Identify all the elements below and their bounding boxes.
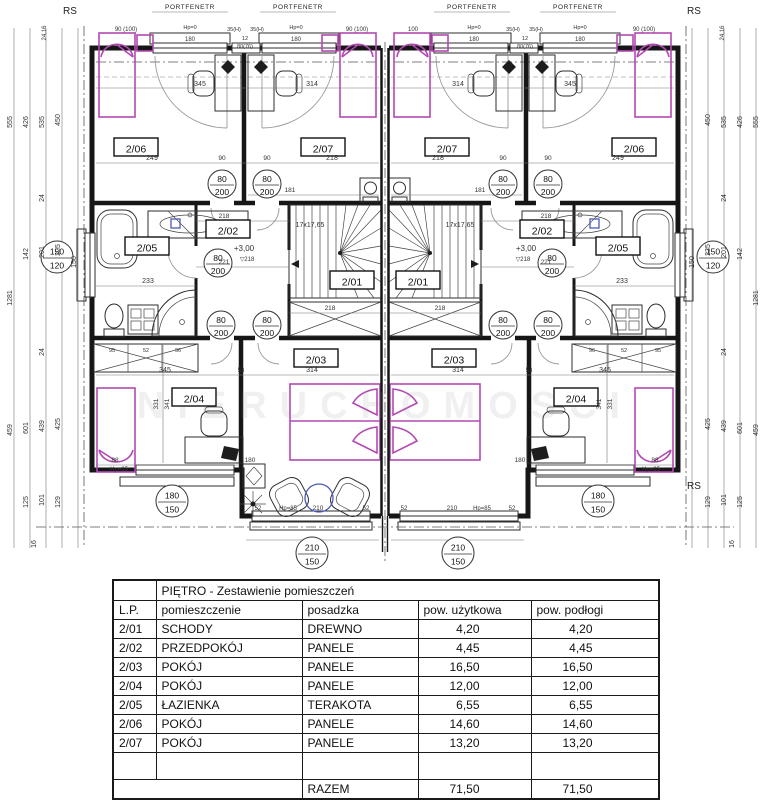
outer-dimension-label: 555 xyxy=(753,116,760,128)
schedule-cell: DREWNO xyxy=(302,620,418,639)
schedule-cell: 13,20 xyxy=(418,734,531,753)
outer-dimension-label: 450 xyxy=(705,114,712,126)
door-size-marker: 80200 xyxy=(489,170,517,198)
dimension-label: 180 xyxy=(291,37,302,43)
outer-dimension-label: 24 xyxy=(721,348,728,356)
toilet xyxy=(104,304,124,337)
svg-text:80: 80 xyxy=(262,174,272,184)
svg-text:150: 150 xyxy=(165,505,179,515)
outer-dimension-label: 535 xyxy=(721,116,728,128)
window-size-marker: 180150 xyxy=(156,485,188,517)
dimension-label: 345 xyxy=(599,367,611,374)
svg-text:200: 200 xyxy=(496,187,510,197)
dimension-label: 181 xyxy=(285,187,296,194)
room-number-label: 2/07 xyxy=(301,138,345,156)
schedule-cell: 4,20 xyxy=(531,620,659,639)
schedule-cell: PANELE xyxy=(302,734,418,753)
svg-text:210: 210 xyxy=(451,543,465,553)
outer-dimension-label: 535 xyxy=(39,116,46,128)
door-size-marker: 80200 xyxy=(253,311,281,339)
dimension-label: Hp=85 xyxy=(642,467,661,473)
outer-dimension-label: 425 xyxy=(705,418,712,430)
svg-text:2/05: 2/05 xyxy=(608,243,629,255)
schedule-cell: 6,55 xyxy=(418,696,531,715)
outer-dimension-label: 142 xyxy=(23,248,30,260)
outer-dimension-label: 101 xyxy=(39,494,46,506)
dimension-label: 210 xyxy=(313,505,324,512)
room-number-label: 2/06 xyxy=(612,138,656,156)
door-swing-arc xyxy=(262,56,334,128)
schedule-cell: POKÓJ xyxy=(156,734,302,753)
door-size-marker: 80200 xyxy=(534,170,562,198)
dimension-label: 24,16 xyxy=(720,25,726,41)
svg-text:2/06: 2/06 xyxy=(126,144,147,156)
rs-label: RS xyxy=(63,6,77,17)
dimension-label: 96 xyxy=(175,348,181,354)
dimension-label: 90 xyxy=(263,155,271,162)
schedule-cell xyxy=(113,753,156,780)
mirror-cabinet xyxy=(171,219,180,228)
dimension-label: 80(76) xyxy=(517,44,533,50)
dimension-label: 314 xyxy=(306,81,318,88)
dimension-label: 52 xyxy=(255,506,262,512)
outer-dimension-label: 24 xyxy=(721,194,728,202)
outer-dimension-label: 439 xyxy=(39,420,46,432)
svg-text:2/01: 2/01 xyxy=(342,277,363,289)
dimension-label: Hp=85 xyxy=(473,506,492,512)
dimension-label: 95 xyxy=(109,348,115,354)
corner-shower xyxy=(152,290,196,336)
svg-text:2/02: 2/02 xyxy=(532,226,553,238)
dimension-label: 52 xyxy=(401,506,408,512)
outer-dimension-label: 201 xyxy=(39,246,46,258)
dimension-label: 12 xyxy=(522,36,528,42)
floor-plan-svg: NIERUCHOMOSCI2/062/072/022/052/012/032/0… xyxy=(0,0,768,572)
dimension-label: 181 xyxy=(475,187,486,194)
room-number-label: 2/02 xyxy=(206,220,250,238)
outer-dimension-label: 16 xyxy=(31,540,38,548)
svg-text:120: 120 xyxy=(706,261,720,271)
schedule-cell: L.P. xyxy=(113,601,156,620)
schedule-cell: 2/06 xyxy=(113,715,156,734)
svg-text:200: 200 xyxy=(541,187,555,197)
dimension-label: ▽218 xyxy=(240,257,255,263)
outer-dimension-label: 459 xyxy=(7,424,14,436)
dimension-label: 17x17,65 xyxy=(296,222,325,229)
dimension-label: Hp=0 xyxy=(573,25,586,31)
svg-text:150: 150 xyxy=(591,505,605,515)
svg-text:2/06: 2/06 xyxy=(624,144,645,156)
portfenetr-label: PORTFENETR xyxy=(553,4,603,11)
door-swing-arc xyxy=(155,56,227,128)
schedule-cell: PIĘTRO - Zestawienie pomieszczeń xyxy=(156,580,659,601)
outer-dimension-label: 426 xyxy=(23,116,30,128)
outer-dimension-label: 150 xyxy=(689,256,696,268)
dimension-label: 90 (100) xyxy=(633,27,655,33)
outer-dimension-label: 1281 xyxy=(7,290,14,306)
schedule-cell: PANELE xyxy=(302,715,418,734)
door-size-marker: 80200 xyxy=(207,311,235,339)
dimension-label: 52 xyxy=(143,348,149,354)
svg-text:180: 180 xyxy=(591,491,605,501)
outer-dimension-label: 24 xyxy=(39,194,46,202)
schedule-cell: PRZEDPOKÓJ xyxy=(156,639,302,658)
room-number-label: 2/03 xyxy=(294,349,338,367)
schedule-cell: 2/05 xyxy=(113,696,156,715)
desk xyxy=(185,437,243,463)
svg-text:150: 150 xyxy=(451,557,465,567)
dimension-label: 12 xyxy=(242,36,248,42)
schedule-cell xyxy=(113,780,302,800)
outer-dimension-label: 601 xyxy=(737,422,744,434)
dimension-label: +3,00 xyxy=(234,244,255,253)
schedule-cell: 4,45 xyxy=(418,639,531,658)
outer-dimension-label: 225 xyxy=(705,244,712,256)
dimension-label: Hp=0 xyxy=(183,25,196,31)
dimension-label: 249 xyxy=(146,155,158,162)
outer-dimension-label: 150 xyxy=(71,256,78,268)
schedule-cell: 2/01 xyxy=(113,620,156,639)
schedule-cell: 16,50 xyxy=(531,658,659,677)
dimension-label: 218 xyxy=(325,305,336,312)
svg-text:200: 200 xyxy=(260,328,274,338)
window-size-marker: 180150 xyxy=(582,485,614,517)
rs-label: RS xyxy=(687,481,701,492)
dimension-label: Hp=0 xyxy=(467,25,480,31)
svg-text:80: 80 xyxy=(543,315,553,325)
outer-dimension-label: 16 xyxy=(729,540,736,548)
dimension-label: 233 xyxy=(616,278,628,285)
dimension-label: +3,00 xyxy=(516,244,537,253)
schedule-cell: TERAKOTA xyxy=(302,696,418,715)
dimension-label: 88 xyxy=(651,457,659,464)
room-number-label: 2/01 xyxy=(396,271,440,289)
schedule-cell: pow. użytkowa xyxy=(418,601,531,620)
dimension-label: 35(H) xyxy=(506,27,520,33)
dimension-label: 90 (100) xyxy=(115,27,137,33)
svg-text:180: 180 xyxy=(165,491,179,501)
vent-stack xyxy=(360,178,381,202)
svg-text:2/01: 2/01 xyxy=(408,277,429,289)
room-number-label: 2/05 xyxy=(596,237,640,255)
outer-dimension-label: 459 xyxy=(753,424,760,436)
svg-text:200: 200 xyxy=(541,328,555,338)
svg-text:200: 200 xyxy=(211,266,225,276)
outer-dimension-label: 450 xyxy=(55,114,62,126)
schedule-cell: PANELE xyxy=(302,677,418,696)
dimension-label: 221 xyxy=(541,259,552,266)
svg-text:80: 80 xyxy=(217,174,227,184)
dimension-label: 314 xyxy=(306,367,318,374)
svg-text:2/07: 2/07 xyxy=(313,144,334,156)
schedule-cell: posadzka xyxy=(302,601,418,620)
schedule-cell: 71,50 xyxy=(418,780,531,800)
schedule-cell: POKÓJ xyxy=(156,715,302,734)
portfenetr-label: PORTFENETR xyxy=(165,4,215,11)
dimension-label: 180 xyxy=(245,457,256,464)
svg-text:200: 200 xyxy=(545,266,559,276)
portfenetr-label: PORTFENETR xyxy=(273,4,323,11)
outer-dimension-label: 1281 xyxy=(753,290,760,306)
dimension-label: 24,16 xyxy=(42,25,48,41)
outer-dimension-label: 225 xyxy=(55,244,62,256)
outer-dimension-label: 201 xyxy=(721,246,728,258)
schedule-cell: 71,50 xyxy=(531,780,659,800)
dimension-label: 53 xyxy=(238,368,245,374)
schedule-cell: pomieszczenie xyxy=(156,601,302,620)
dimension-label: 345 xyxy=(194,81,206,88)
outer-dimension-label: 129 xyxy=(705,496,712,508)
dimension-label: 90 xyxy=(499,155,507,162)
door-size-marker: 80200 xyxy=(253,170,281,198)
outer-dimension-label: 24 xyxy=(39,348,46,356)
schedule-row: 2/03POKÓJPANELE16,5016,50 xyxy=(113,658,659,677)
svg-text:120: 120 xyxy=(50,261,64,271)
schedule-row: RAZEM71,5071,50 xyxy=(113,780,659,800)
room-number-label: 2/04 xyxy=(172,388,216,406)
portfenetr-label: PORTFENETR xyxy=(447,4,497,11)
schedule-cell: 4,20 xyxy=(418,620,531,639)
dimension-label: 218 xyxy=(326,155,338,162)
schedule-row: 2/02PRZEDPOKÓJPANELE4,454,45 xyxy=(113,639,659,658)
party-wall xyxy=(382,42,389,562)
schedule-cell: PANELE xyxy=(302,658,418,677)
dimension-label: 35(H) xyxy=(227,27,241,33)
dimension-label: 345 xyxy=(564,81,576,88)
schedule-cell: 6,55 xyxy=(531,696,659,715)
dimension-label: 314 xyxy=(452,367,464,374)
room-number-label: 2/03 xyxy=(432,349,476,367)
outer-dimension-label: 425 xyxy=(55,418,62,430)
room-number-label: 2/04 xyxy=(554,388,598,406)
dimension-label: 90 xyxy=(544,155,552,162)
dimension-label: ▽218 xyxy=(516,257,531,263)
window-size-marker: 210150 xyxy=(442,537,474,569)
schedule-row: 2/01SCHODYDREWNO4,204,20 xyxy=(113,620,659,639)
schedule-cell: POKÓJ xyxy=(156,677,302,696)
architectural-drawing-page: NIERUCHOMOSCI2/062/072/022/052/012/032/0… xyxy=(0,0,768,805)
schedule-cell: RAZEM xyxy=(302,780,418,800)
schedule-cell: 14,60 xyxy=(531,715,659,734)
window-size-marker: 210150 xyxy=(296,537,328,569)
outer-dimension-label: 129 xyxy=(55,496,62,508)
laptop xyxy=(221,446,239,461)
schedule-cell xyxy=(302,753,418,780)
dimension-label: 90 (100) xyxy=(346,27,368,33)
svg-text:2/05: 2/05 xyxy=(137,243,158,255)
svg-text:150: 150 xyxy=(305,557,319,567)
door-size-marker: 80200 xyxy=(534,311,562,339)
schedule-cell: 13,20 xyxy=(531,734,659,753)
dimension-label: 180 xyxy=(469,37,480,43)
washer-cabinet xyxy=(128,305,158,334)
svg-text:2/03: 2/03 xyxy=(444,355,465,367)
schedule-row: 2/07POKÓJPANELE13,2013,20 xyxy=(113,734,659,753)
dimension-label: 35(H) xyxy=(250,27,264,33)
room-number-label: 2/02 xyxy=(520,220,564,238)
room-schedule: PIĘTRO - Zestawienie pomieszczeńL.P.pomi… xyxy=(112,579,660,800)
window-sill xyxy=(250,522,372,530)
dimension-label: 80(76) xyxy=(237,44,253,50)
dimension-label: 180 xyxy=(185,37,196,43)
outer-dimension-label: 426 xyxy=(737,116,744,128)
schedule-cell xyxy=(418,753,531,780)
room-number-label: 2/05 xyxy=(125,237,169,255)
outer-dimension-label: 142 xyxy=(737,248,744,260)
schedule-row xyxy=(113,753,659,780)
dimension-label: 17x17,65 xyxy=(446,222,475,229)
svg-text:2/02: 2/02 xyxy=(218,226,239,238)
schedule-cell: SCHODY xyxy=(156,620,302,639)
outer-dimension-label: 439 xyxy=(721,420,728,432)
dimension-label: Hp=85 xyxy=(279,506,298,512)
dimension-label: 90 xyxy=(218,155,226,162)
dimension-label: 341 xyxy=(164,398,171,409)
dimension-label: 218 xyxy=(432,155,444,162)
svg-text:200: 200 xyxy=(214,328,228,338)
schedule-cell: 16,50 xyxy=(418,658,531,677)
dimension-label: 331 xyxy=(607,398,614,409)
svg-text:80: 80 xyxy=(498,315,508,325)
dimension-label: 53 xyxy=(526,368,533,374)
schedule-cell xyxy=(113,580,156,601)
svg-text:80: 80 xyxy=(262,315,272,325)
door-size-marker: 80200 xyxy=(489,311,517,339)
outer-dimension-label: 601 xyxy=(23,422,30,434)
schedule-cell: 14,60 xyxy=(418,715,531,734)
dimension-label: 210 xyxy=(447,505,458,512)
schedule-cell: PANELE xyxy=(302,639,418,658)
svg-text:2/07: 2/07 xyxy=(437,144,458,156)
schedule-cell: 4,45 xyxy=(531,639,659,658)
svg-text:2/04: 2/04 xyxy=(184,394,205,406)
dimension-label: 218 xyxy=(435,305,446,312)
svg-text:210: 210 xyxy=(305,543,319,553)
schedule-cell: pow. podłogi xyxy=(531,601,659,620)
dimension-label: 100 xyxy=(408,27,419,33)
svg-text:80: 80 xyxy=(543,174,553,184)
schedule-cell: ŁAZIENKA xyxy=(156,696,302,715)
dimension-label: 249 xyxy=(612,155,624,162)
dimension-label: 180 xyxy=(515,457,526,464)
svg-text:80: 80 xyxy=(498,174,508,184)
dimension-label: 331 xyxy=(153,398,160,409)
outer-dimension-label: 125 xyxy=(23,496,30,508)
schedule-row: PIĘTRO - Zestawienie pomieszczeń xyxy=(113,580,659,601)
schedule-cell: 2/02 xyxy=(113,639,156,658)
dimension-label: 218 xyxy=(219,213,230,220)
cabinet xyxy=(243,464,265,488)
room-number-label: 2/07 xyxy=(425,138,469,156)
dimension-label: 221 xyxy=(219,259,230,266)
schedule-cell xyxy=(531,753,659,780)
svg-text:200: 200 xyxy=(496,328,510,338)
schedule-cell: 12,00 xyxy=(531,677,659,696)
dimension-label: 52 xyxy=(363,506,370,512)
outer-dimension-label: 125 xyxy=(737,496,744,508)
dimension-label: 314 xyxy=(452,81,464,88)
schedule-cell: 2/03 xyxy=(113,658,156,677)
door-size-marker: 80200 xyxy=(208,170,236,198)
svg-text:200: 200 xyxy=(215,187,229,197)
window-sill xyxy=(120,477,234,486)
dimension-label: 95 xyxy=(655,348,661,354)
rs-label: RS xyxy=(687,6,701,17)
dimension-label: 180 xyxy=(575,37,586,43)
dimension-label: 35(H) xyxy=(529,27,543,33)
dimension-label: 88 xyxy=(111,457,119,464)
svg-text:200: 200 xyxy=(260,187,274,197)
schedule-row: L.P.pomieszczenieposadzkapow. użytkowapo… xyxy=(113,601,659,620)
dimension-label: 96 xyxy=(589,348,595,354)
dimension-label: Hp=85 xyxy=(110,467,129,473)
schedule-cell: POKÓJ xyxy=(156,658,302,677)
outer-dimension-label: 555 xyxy=(7,116,14,128)
schedule-cell: 2/07 xyxy=(113,734,156,753)
room-number-label: 2/01 xyxy=(330,271,374,289)
schedule-cell: 2/04 xyxy=(113,677,156,696)
dimension-label: 52 xyxy=(509,506,516,512)
dimension-label: 218 xyxy=(541,213,552,220)
room-schedule-table: PIĘTRO - Zestawienie pomieszczeńL.P.pomi… xyxy=(112,579,660,800)
schedule-row: 2/05ŁAZIENKATERAKOTA6,556,55 xyxy=(113,696,659,715)
dimension-label: 233 xyxy=(142,278,154,285)
schedule-row: 2/04POKÓJPANELE12,0012,00 xyxy=(113,677,659,696)
svg-text:2/03: 2/03 xyxy=(306,355,327,367)
dimension-label: 52 xyxy=(621,348,627,354)
outer-dimension-label: 101 xyxy=(721,494,728,506)
dimension-label: 341 xyxy=(596,398,603,409)
svg-text:80: 80 xyxy=(216,315,226,325)
schedule-row: 2/06POKÓJPANELE14,6014,60 xyxy=(113,715,659,734)
room-number-label: 2/06 xyxy=(114,138,158,156)
dimension-label: Hp=0 xyxy=(289,25,302,31)
svg-text:2/04: 2/04 xyxy=(566,394,587,406)
schedule-cell: 12,00 xyxy=(418,677,531,696)
schedule-cell xyxy=(156,753,302,780)
dimension-label: 345 xyxy=(159,367,171,374)
